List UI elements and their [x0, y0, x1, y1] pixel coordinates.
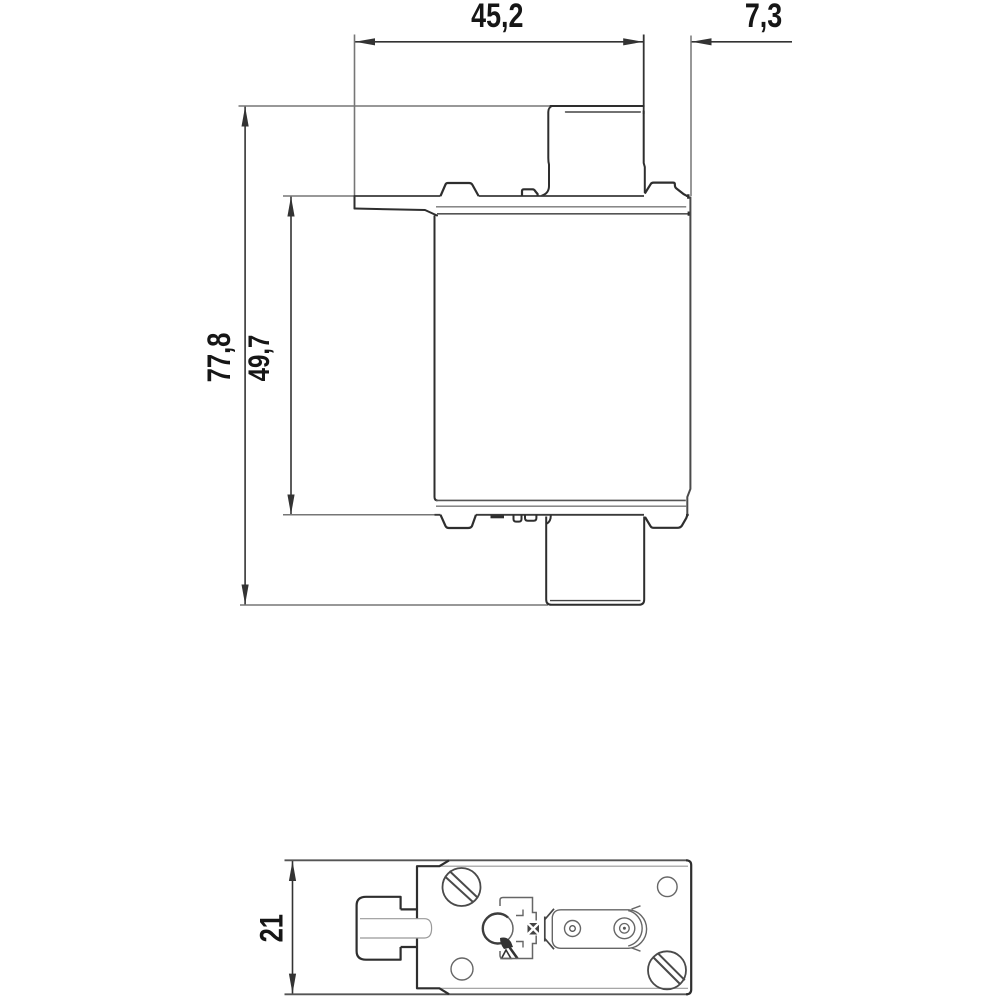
svg-text:7,3: 7,3	[745, 0, 782, 35]
svg-text:21: 21	[255, 914, 290, 942]
svg-text:77,8: 77,8	[202, 333, 237, 383]
svg-text:49,7: 49,7	[241, 335, 275, 382]
svg-text:45,2: 45,2	[471, 0, 523, 35]
